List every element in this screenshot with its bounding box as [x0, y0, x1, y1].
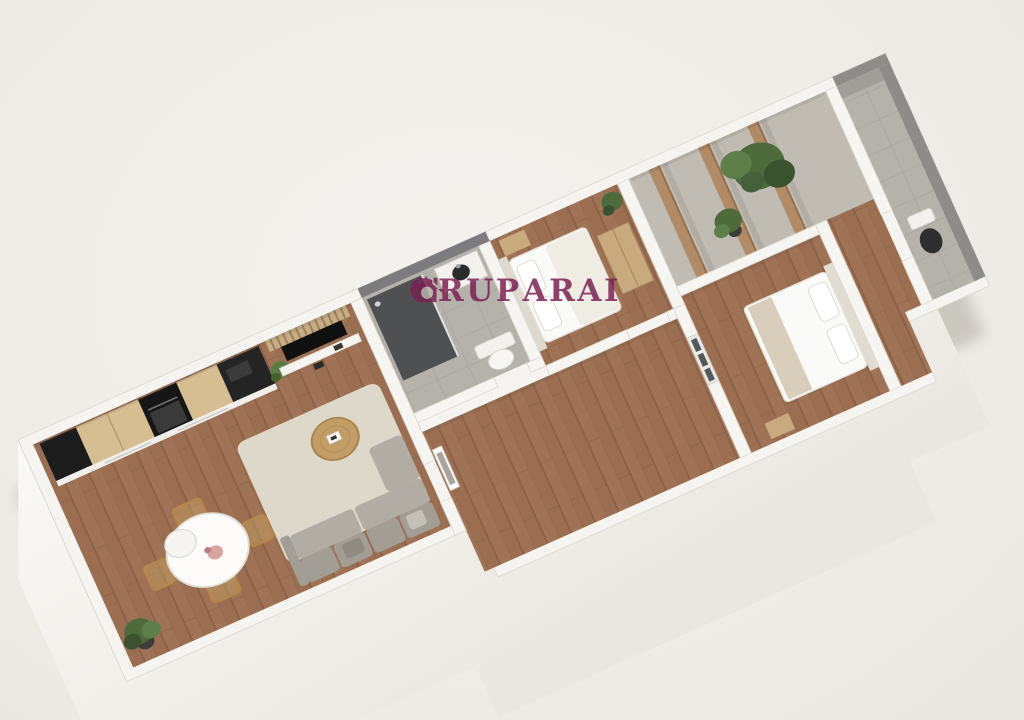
floorplan-canvas — [0, 0, 1024, 720]
house-icon — [411, 273, 445, 305]
floorplan-render: GRUP ARAI — [0, 0, 1024, 720]
house-icon-center — [421, 287, 433, 299]
watermark-text-right: ARAI — [523, 273, 621, 309]
floor-plan-group — [0, 53, 1024, 720]
watermark: GRUP ARAI — [409, 273, 621, 309]
